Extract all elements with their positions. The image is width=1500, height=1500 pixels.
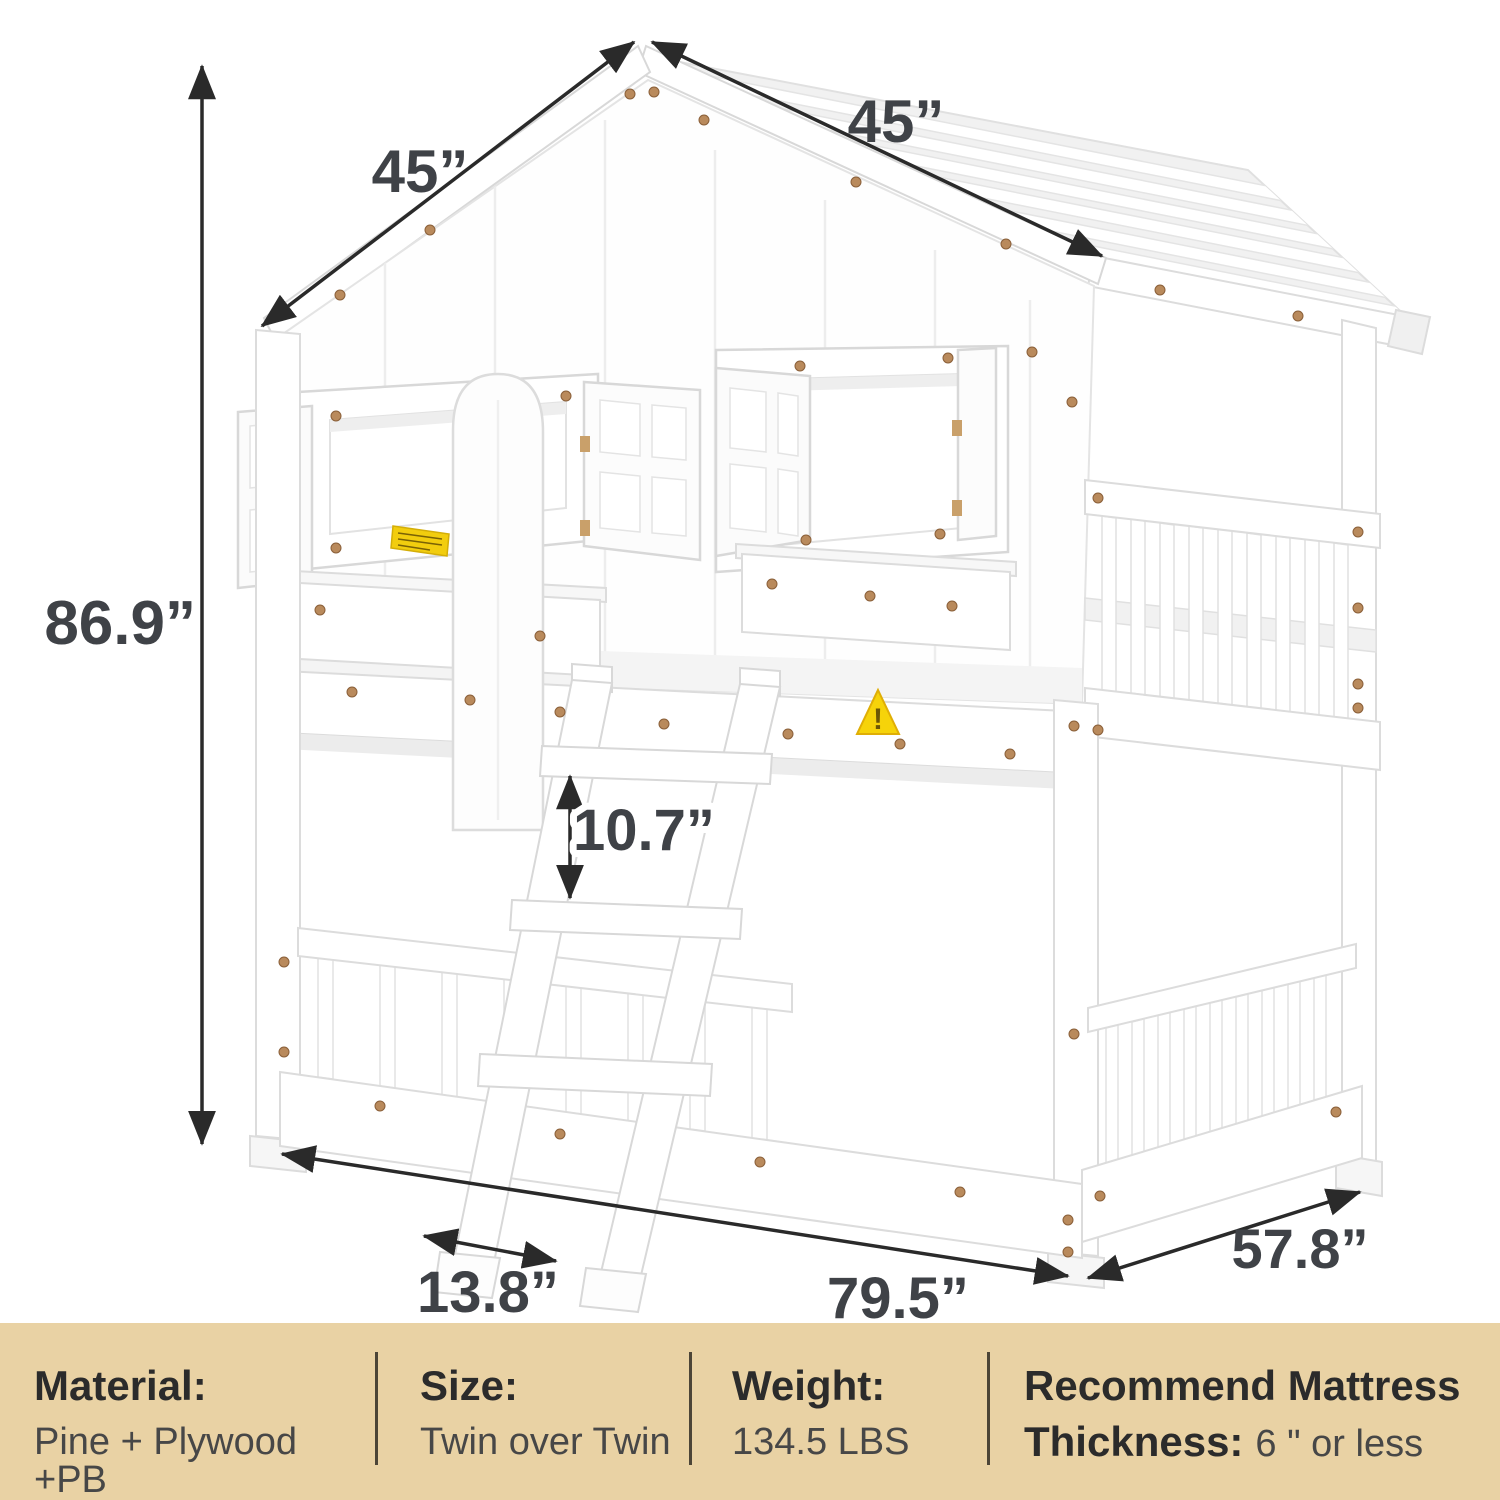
right-window-left-shutter [716,368,810,556]
height-dimension-label: 86.9” [44,589,196,658]
left-window-box [276,570,606,676]
right-window-box [736,544,1016,650]
door-panel [453,374,543,830]
spec-size: Size: Twin over Twin [376,1365,690,1500]
spec-mattress: Recommend Mattress Thickness:6 " or less [988,1365,1500,1500]
spec-size-value: Twin over Twin [420,1423,690,1461]
spec-divider [689,1352,692,1465]
length-dimension-label: 79.5” [827,1266,969,1331]
product-dimension-image: ! 86.9” 45” 45” 10.7” 13.8” 79.5” 57.8” … [0,0,1500,1500]
ladder-foot-dimension-label: 13.8” [417,1260,559,1325]
left-window-right-shutter [580,382,700,560]
spec-material-label: Material: [34,1365,376,1407]
spec-mattress-label-line2: Thickness: [1024,1418,1243,1465]
depth-dimension-label: 57.8” [1232,1217,1369,1280]
roof-eave-endcap [1388,310,1430,354]
upper-right-guard-rail [1085,480,1380,770]
warning-glyph: ! [873,703,883,736]
right-window [716,346,1008,572]
front-left-post [250,330,306,1172]
ladder-step-dimension-label: 10.7” [573,798,715,863]
roof-right-dimension-label: 45” [848,88,945,155]
bed-illustration: ! [238,46,1500,1312]
spec-mattress-label-line1: Recommend Mattress [1024,1365,1500,1407]
spec-divider [375,1352,378,1465]
bed-dimension-diagram: ! 86.9” 45” 45” 10.7” 13.8” 79.5” 57.8” [0,0,1500,1500]
spec-weight-label: Weight: [732,1365,988,1407]
right-window-right-shutter [952,348,996,540]
spec-mattress-value: 6 " or less [1255,1423,1423,1465]
spec-weight-value: 134.5 LBS [732,1423,988,1461]
spec-size-label: Size: [420,1365,690,1407]
spec-bar: Material: Pine + Plywood +PB Size: Twin … [0,1323,1500,1500]
ladder-right-foot [580,1268,646,1312]
spec-mattress-line2: Thickness:6 " or less [1024,1421,1500,1463]
roof-left-dimension-label: 45” [372,138,469,205]
spec-weight: Weight: 134.5 LBS [690,1365,988,1500]
spec-divider [987,1352,990,1465]
spec-material: Material: Pine + Plywood +PB [0,1365,376,1500]
spec-material-value: Pine + Plywood +PB [34,1423,376,1499]
